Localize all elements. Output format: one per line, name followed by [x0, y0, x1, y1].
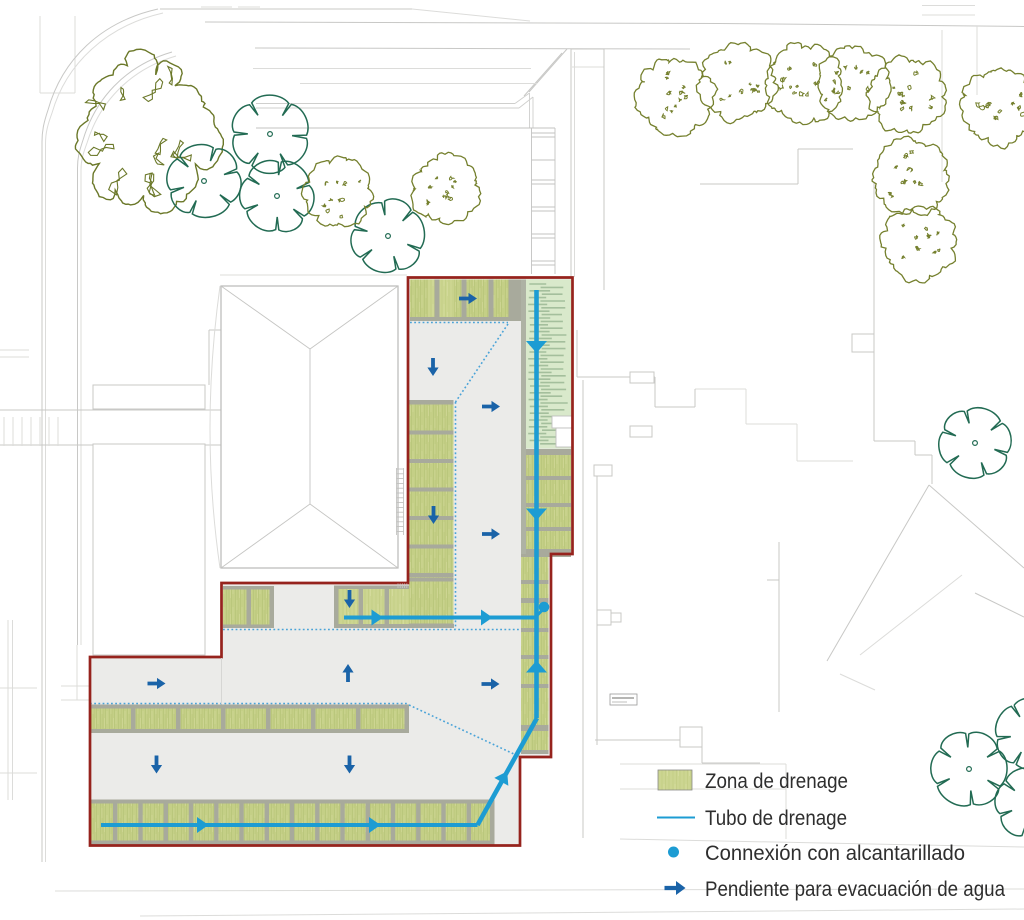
svg-text:Connexión con alcantarillado: Connexión con alcantarillado	[705, 842, 965, 865]
svg-text:Pendiente para evacuación de a: Pendiente para evacuación de agua	[705, 878, 1005, 901]
svg-text:Zona de drenage: Zona de drenage	[705, 770, 848, 793]
svg-text:Tubo de drenage: Tubo de drenage	[705, 807, 847, 830]
